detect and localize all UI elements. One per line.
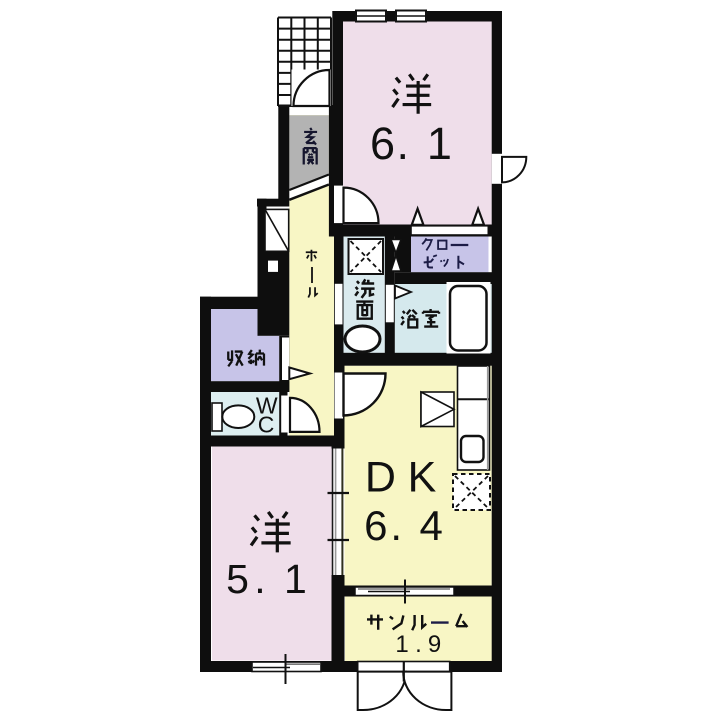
svg-text:9: 9: [428, 631, 441, 658]
svg-text:1: 1: [427, 118, 452, 169]
svg-text:K: K: [408, 454, 437, 502]
svg-text:.: .: [390, 502, 402, 549]
svg-text:1: 1: [284, 556, 307, 602]
svg-text:5: 5: [226, 556, 249, 602]
svg-text:6: 6: [364, 502, 387, 549]
svg-text:.: .: [254, 556, 265, 602]
svg-text:4: 4: [420, 502, 443, 549]
svg-text:C: C: [258, 412, 275, 438]
svg-text:6: 6: [370, 118, 395, 169]
svg-text:.: .: [415, 631, 422, 658]
svg-text:1: 1: [395, 631, 408, 658]
svg-text:.: .: [397, 118, 410, 169]
svg-text:D: D: [365, 454, 396, 502]
